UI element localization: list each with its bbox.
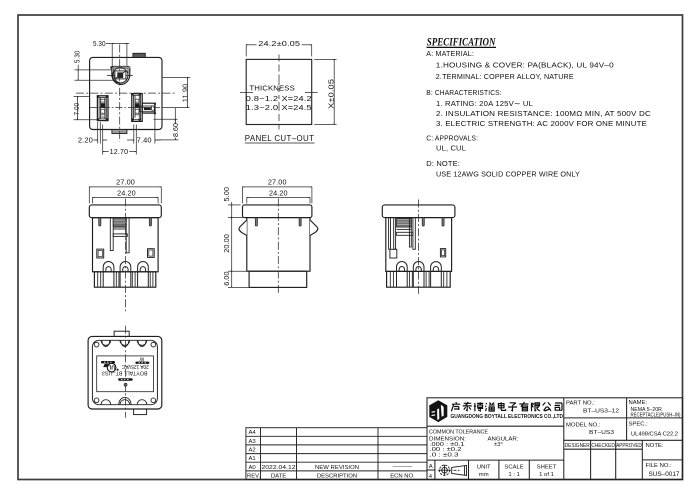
svg-text:DATE: DATE xyxy=(271,474,286,480)
svg-text:A2: A2 xyxy=(249,448,256,454)
svg-text:BOYTALL BT–US3: BOYTALL BT–US3 xyxy=(102,369,148,375)
svg-text:W: W xyxy=(139,355,144,361)
svg-text:RECEPTACLE(PUSH–IN): RECEPTACLE(PUSH–IN) xyxy=(631,413,681,419)
svg-text:PART NO.:: PART NO.: xyxy=(566,401,595,407)
svg-text:5.30: 5.30 xyxy=(74,50,81,63)
svg-text:5.30: 5.30 xyxy=(93,41,106,48)
svg-text:A3: A3 xyxy=(249,439,257,445)
svg-text:A0: A0 xyxy=(249,465,257,471)
svg-text:1.HOUSING & COVER: PA(BLACK),: 1.HOUSING & COVER: PA(BLACK), UL 94V–0 xyxy=(436,60,614,69)
svg-text:6.00: 6.00 xyxy=(224,271,231,286)
svg-text:24.20: 24.20 xyxy=(269,190,288,197)
svg-text:1 of 1: 1 of 1 xyxy=(539,472,554,478)
svg-text:CHECKED: CHECKED xyxy=(591,443,615,449)
svg-text:UL: UL xyxy=(108,364,115,370)
svg-text:12.70: 12.70 xyxy=(110,149,129,156)
svg-text:X=24.5: X=24.5 xyxy=(282,105,312,112)
svg-text:COMMON TOLERANCE: COMMON TOLERANCE xyxy=(429,429,488,435)
svg-text:REV.: REV. xyxy=(247,474,261,480)
svg-text:SHEET: SHEET xyxy=(537,465,557,471)
svg-text:mm: mm xyxy=(479,472,489,478)
svg-text:A4: A4 xyxy=(249,430,257,436)
svg-text:24.20: 24.20 xyxy=(117,190,136,197)
svg-text:THICKNESS: THICKNESS xyxy=(249,86,295,93)
svg-text:BT–US3–12: BT–US3–12 xyxy=(583,409,619,415)
svg-text:NEW REVISION: NEW REVISION xyxy=(315,465,359,471)
svg-text:.0 : ±0.3: .0 : ±0.3 xyxy=(430,453,460,459)
svg-text:UL498/CSA C22.2: UL498/CSA C22.2 xyxy=(631,431,678,437)
svg-text:B: CHARACTERISTICS:: B: CHARACTERISTICS: xyxy=(426,88,501,97)
svg-text:7.40: 7.40 xyxy=(137,138,152,145)
svg-text:USE 12AWG SOLID COPPER WIRE ON: USE 12AWG SOLID COPPER WIRE ONLY xyxy=(436,169,580,178)
svg-text:2.20: 2.20 xyxy=(78,138,93,145)
svg-text:X±0.05: X±0.05 xyxy=(329,79,336,109)
svg-text:MODEL NO.:: MODEL NO.: xyxy=(566,423,601,429)
svg-text:1. RATING: 20A 125V∼ UL: 1. RATING: 20A 125V∼ UL xyxy=(436,99,533,108)
svg-text:8.60: 8.60 xyxy=(173,123,180,137)
svg-text:DESIGNER: DESIGNER xyxy=(565,443,590,449)
svg-text:2.TERMINAL: COPPER ALLOY, NAT: 2.TERMINAL: COPPER ALLOY, NATURE xyxy=(436,72,574,81)
svg-text:C: APPROVALS:: C: APPROVALS: xyxy=(426,133,478,142)
svg-text:SPEC.:: SPEC.: xyxy=(629,422,649,428)
svg-text:A: A xyxy=(429,464,433,470)
svg-text:BT–US3: BT–US3 xyxy=(589,430,615,436)
svg-text:5.00: 5.00 xyxy=(224,187,231,202)
svg-text:——: —— xyxy=(393,464,413,470)
svg-text:A: MATERIAL:: A: MATERIAL: xyxy=(426,49,474,58)
svg-text:2022.04.12: 2022.04.12 xyxy=(262,465,296,471)
svg-text:NAME:: NAME: xyxy=(629,400,648,406)
svg-text:1.3~2.0: 1.3~2.0 xyxy=(246,105,279,112)
svg-text:ANGULAR:: ANGULAR: xyxy=(488,436,519,442)
svg-text:2. INSULATION RESISTANCE: 100: 2. INSULATION RESISTANCE: 100MΩ MIN, AT … xyxy=(436,109,651,118)
svg-text:NOTE:: NOTE: xyxy=(646,443,664,449)
svg-text:27.00: 27.00 xyxy=(116,180,135,187)
svg-text:A1: A1 xyxy=(249,456,256,462)
svg-text:SPECIFICATION: SPECIFICATION xyxy=(427,36,496,48)
svg-text:GUANGDONG BOYTALL ELECTRONICS: GUANGDONG BOYTALL ELECTRONICS CO.,LTD xyxy=(451,414,564,420)
svg-text:1 : 1: 1 : 1 xyxy=(508,472,519,478)
svg-text:DESCRIPTION: DESCRIPTION xyxy=(317,474,357,480)
svg-text:PANEL CUT–OUT: PANEL CUT–OUT xyxy=(245,134,314,143)
svg-text:0.8~1.2: 0.8~1.2 xyxy=(246,96,279,103)
svg-text:ECN NO.: ECN NO. xyxy=(390,474,415,480)
svg-text:UNIT: UNIT xyxy=(477,465,491,471)
svg-text:UL, CUL: UL, CUL xyxy=(436,144,466,153)
svg-text:27.00: 27.00 xyxy=(268,180,287,187)
svg-text:7.00: 7.00 xyxy=(74,103,81,116)
svg-text:±3°: ±3° xyxy=(494,442,503,448)
svg-text:11.90: 11.90 xyxy=(182,84,189,103)
svg-text:SCALE: SCALE xyxy=(504,465,523,471)
svg-text:SUS–0017: SUS–0017 xyxy=(649,471,680,478)
svg-text:APPROVED: APPROVED xyxy=(616,443,642,449)
svg-text:24.2±0.05: 24.2±0.05 xyxy=(258,41,300,48)
svg-text:FILE NO.:: FILE NO.: xyxy=(646,463,673,469)
svg-text:3. ELECTRIC STRENGTH: AC 2000: 3. ELECTRIC STRENGTH: AC 2000V FOR ONE M… xyxy=(436,119,647,128)
svg-text:X=24.2: X=24.2 xyxy=(282,96,312,103)
svg-text:20.00: 20.00 xyxy=(224,234,231,253)
svg-text:D: NOTE:: D: NOTE: xyxy=(426,159,460,168)
